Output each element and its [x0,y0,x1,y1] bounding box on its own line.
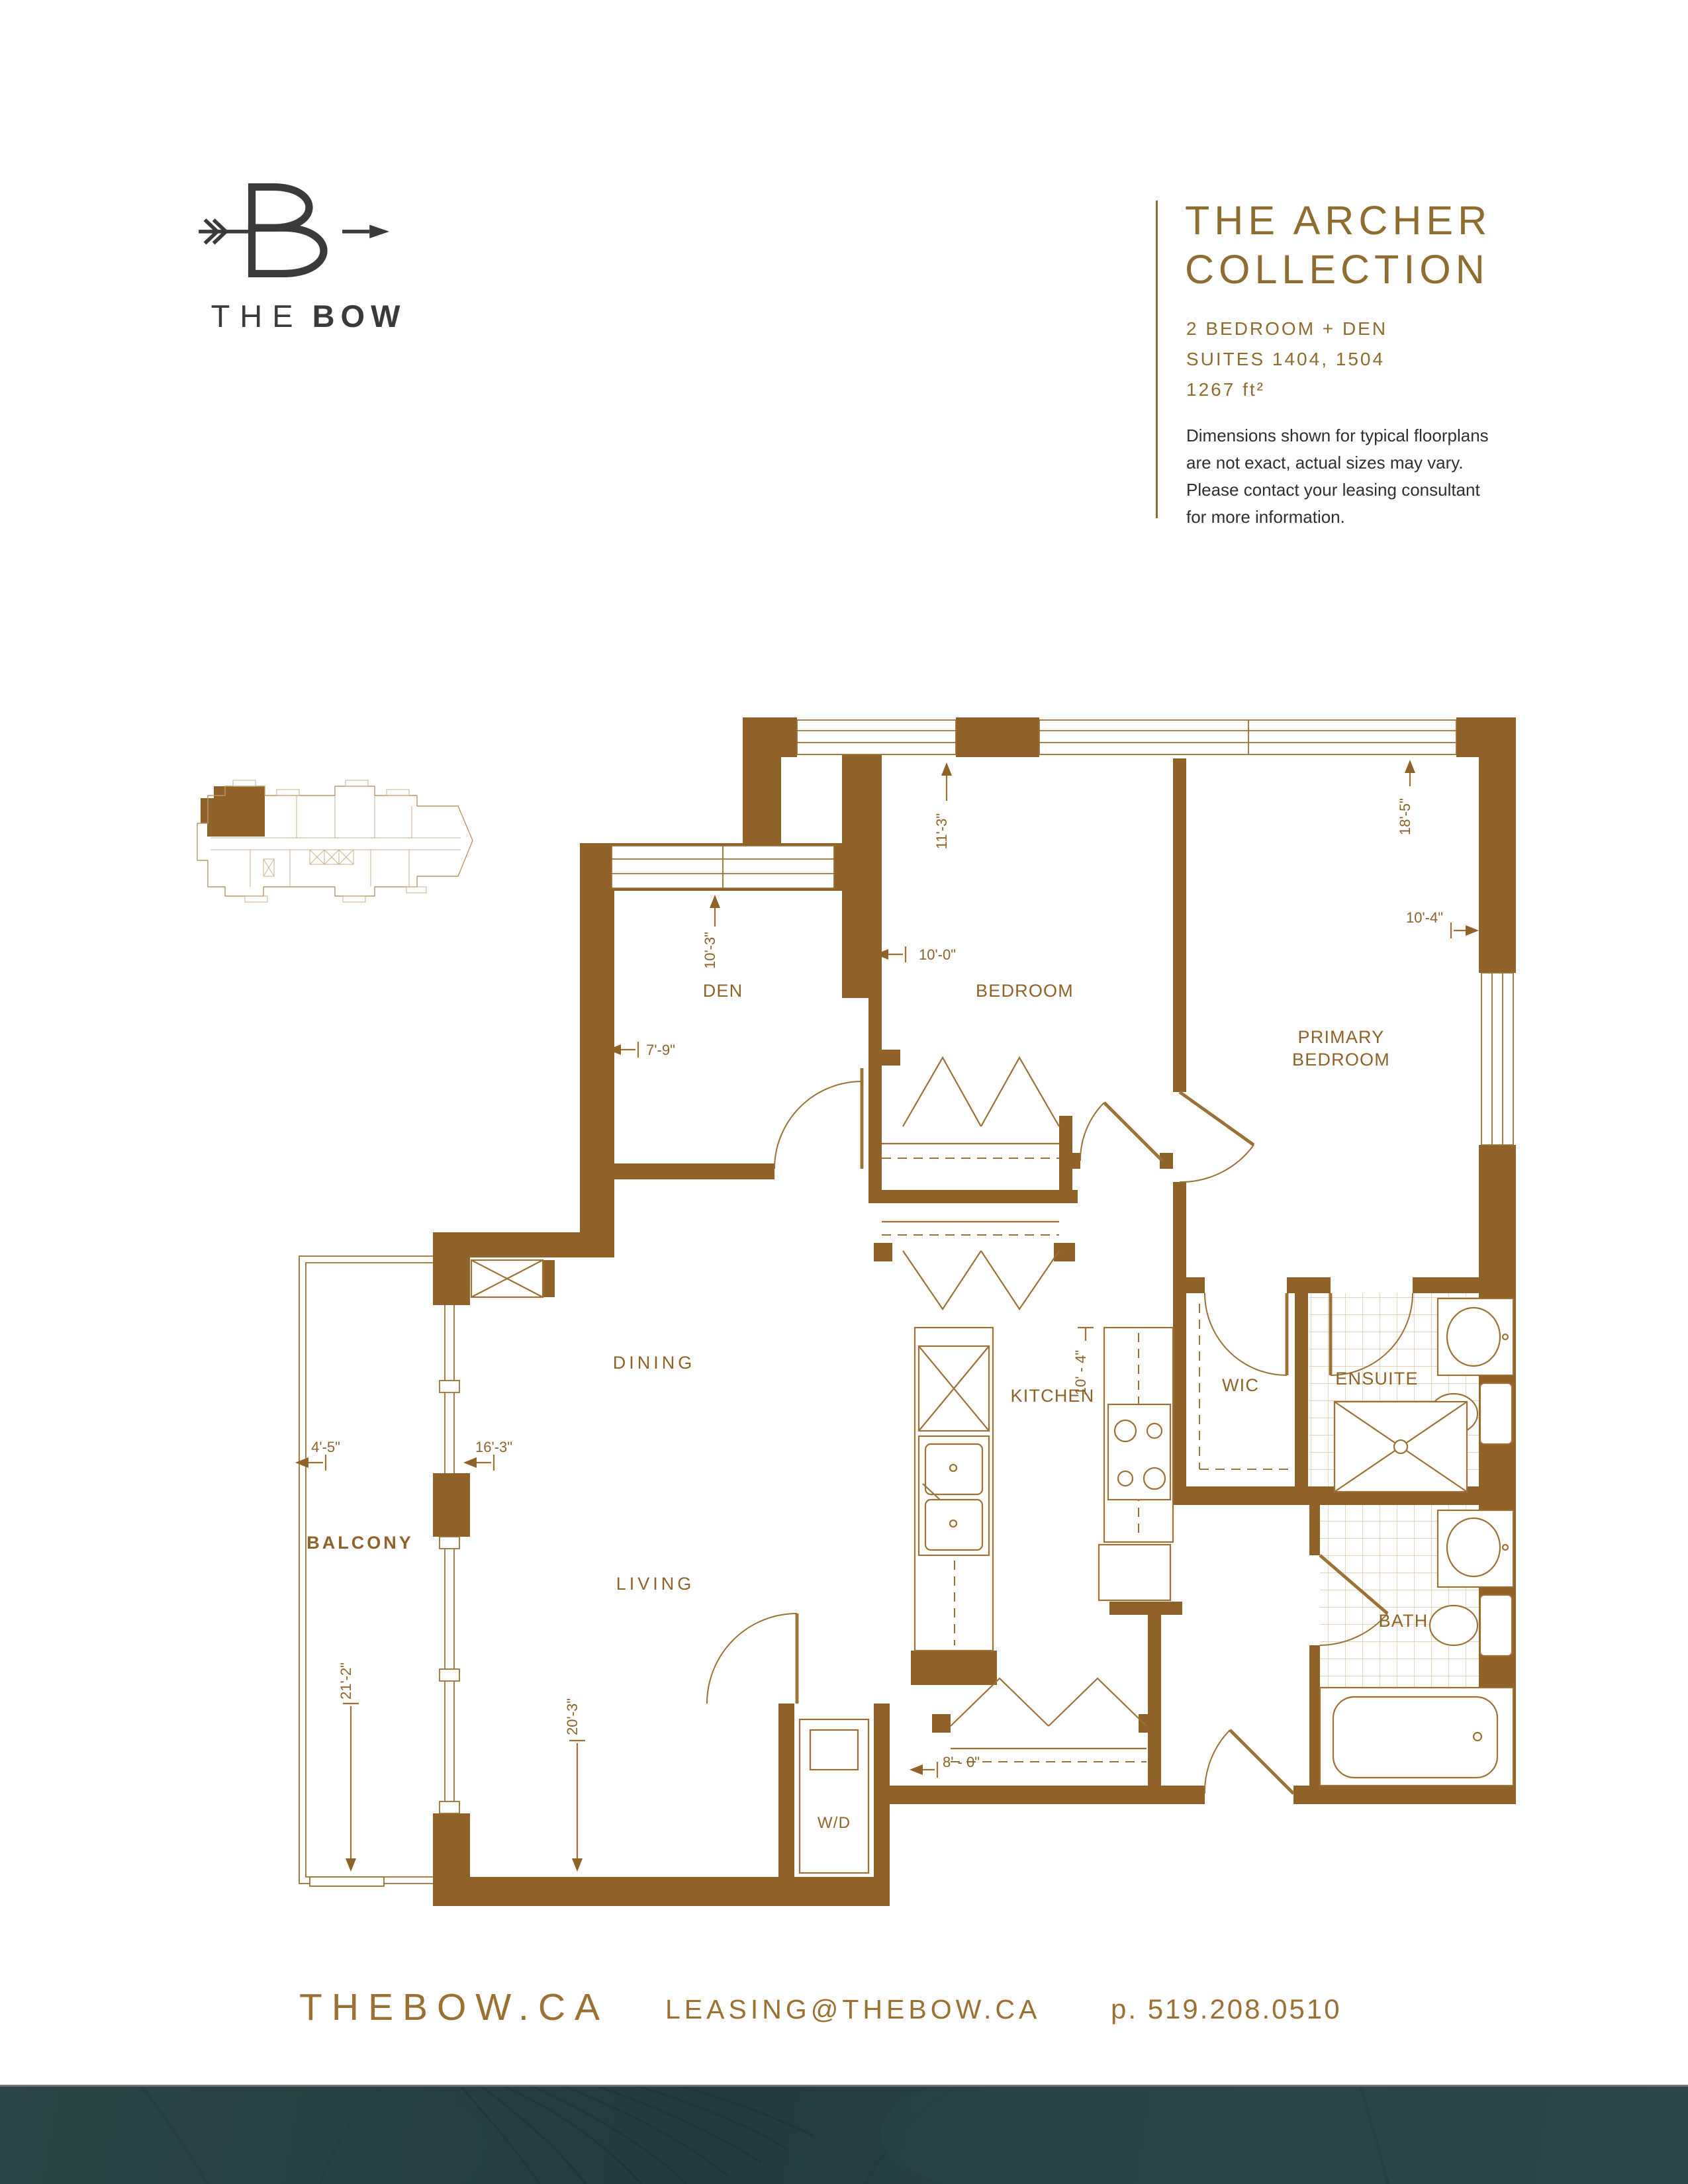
suite-area: 1267 ft² [1186,375,1387,405]
svg-text:10'-0": 10'-0" [919,946,956,963]
laundry-closet [800,1719,868,1873]
dishwasher [1099,1545,1170,1600]
hall-closet [882,1222,1059,1309]
ensuite-shower [1335,1402,1467,1492]
room-label-wic: WIC [1222,1375,1259,1395]
svg-text:18'-5": 18'-5" [1397,798,1413,835]
decorative-photo-strip [0,2087,1688,2184]
disclaimer-line: Please contact your leasing consultant [1186,477,1489,504]
palm-leaf-texture [0,2087,1688,2184]
collection-title-line2: COLLECTION [1185,245,1491,294]
footer-website: THEBOW.CA [299,1985,609,2029]
floorplan-sheet: THEBOW THE ARCHER COLLECTION 2 BEDROOM +… [0,0,1688,2184]
room-label-dining: DINING [613,1353,696,1373]
brand-the: THE [211,298,303,334]
svg-text:10'-3": 10'-3" [702,932,718,969]
entry-closet [951,1678,1147,1762]
svg-text:10'-4": 10'-4" [1406,909,1443,926]
disclaimer-line: are not exact, actual sizes may vary. [1186,449,1489,477]
brand-wordmark: THEBOW [177,298,440,334]
ensuite-sink [1438,1298,1513,1375]
svg-text:20'-3": 20'-3" [564,1698,581,1735]
dining-closet [471,1260,543,1297]
stove-icon [1108,1404,1170,1500]
room-label-balcony: BALCONY [306,1533,414,1553]
footer-phone: p. 519.208.0510 [1111,1993,1342,2025]
unit-type: 2 BEDROOM + DEN [1186,314,1387,344]
svg-text:16'-3": 16'-3" [475,1439,512,1455]
svg-text:21'-2": 21'-2" [338,1662,354,1700]
disclaimer-line: for more information. [1186,504,1489,531]
suite-info: 2 BEDROOM + DEN SUITES 1404, 1504 1267 f… [1186,314,1387,405]
footer-email: LEASING@THEBOW.CA [665,1994,1041,2025]
keyplan-highlighted-unit [201,786,265,837]
svg-text:10' - 4": 10' - 4" [1072,1350,1089,1395]
bow-arrow-logo-icon [196,173,395,287]
room-label-bath: BATH [1379,1611,1429,1631]
floorplan-drawing: DEN BEDROOM PRIMARY BEDROOM DINING KITCH… [278,695,1516,1906]
svg-text:8' - 0": 8' - 0" [943,1754,980,1770]
disclaimer-line: Dimensions shown for typical floorplans [1186,422,1489,449]
collection-title: THE ARCHER COLLECTION [1185,196,1491,294]
balcony-rail [299,1256,433,1886]
svg-text:7'-9": 7'-9" [646,1042,675,1058]
bedroom-closet [882,1058,1059,1158]
disclaimer-text: Dimensions shown for typical floorplans … [1186,422,1489,531]
svg-text:11'-3": 11'-3" [933,813,950,849]
room-label-primary-1: PRIMARY [1298,1027,1385,1047]
room-label-den: DEN [703,981,743,1001]
svg-text:4'-5": 4'-5" [311,1439,340,1455]
suite-numbers: SUITES 1404, 1504 [1186,344,1387,375]
room-label-wd: W/D [818,1814,851,1832]
room-label-primary-2: BEDROOM [1292,1050,1390,1069]
room-label-bedroom: BEDROOM [976,981,1074,1001]
kitchen-counter [1099,1328,1173,1600]
bathtub [1320,1688,1513,1786]
kitchen-island [915,1328,993,1651]
header-divider-rule [1156,201,1158,518]
brand-bow: BOW [312,298,406,334]
room-label-living: LIVING [616,1574,695,1594]
room-label-ensuite: ENSUITE [1335,1369,1418,1388]
collection-title-line1: THE ARCHER [1185,196,1491,245]
bath-sink [1438,1510,1513,1587]
